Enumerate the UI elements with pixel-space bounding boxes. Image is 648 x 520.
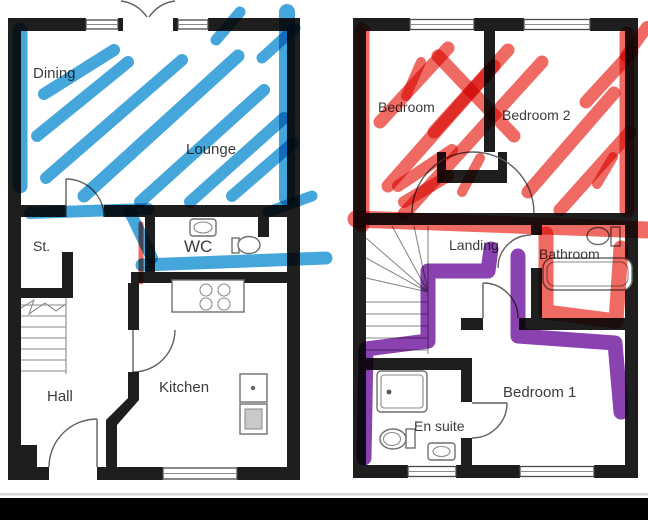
wall bbox=[484, 31, 495, 152]
kitchen-sink-icon bbox=[240, 374, 267, 434]
wall bbox=[21, 288, 73, 298]
front-door-arc bbox=[49, 419, 97, 467]
toilet-icon bbox=[380, 429, 415, 449]
floor-plan-canvas: Dining Lounge St. WC Hall Kitchen bbox=[0, 0, 648, 520]
room-label-wc: WC bbox=[184, 237, 212, 256]
letterbox-bottom bbox=[0, 498, 648, 520]
ground-floor-plan: Dining Lounge St. WC Hall Kitchen bbox=[8, 1, 300, 480]
wall bbox=[128, 283, 139, 330]
sink-icon bbox=[190, 219, 216, 236]
room-label-st: St. bbox=[33, 238, 50, 254]
room-label-kitchen: Kitchen bbox=[159, 379, 209, 396]
shower-icon bbox=[377, 371, 427, 412]
ensuite-door-arc bbox=[472, 403, 507, 438]
wall bbox=[36, 467, 49, 480]
red-stroke bbox=[406, 62, 421, 96]
blue-stroke bbox=[142, 258, 326, 265]
room-label-bedroom1: Bedroom 1 bbox=[503, 384, 576, 401]
wall bbox=[8, 445, 37, 480]
floor-plan-image: Dining Lounge St. WC Hall Kitchen bbox=[0, 0, 648, 520]
wall bbox=[461, 318, 483, 330]
hob-icon bbox=[172, 280, 244, 312]
wall bbox=[366, 358, 472, 370]
wall bbox=[353, 465, 408, 478]
stairs bbox=[21, 298, 66, 374]
wall bbox=[118, 18, 123, 31]
window bbox=[86, 20, 237, 479]
wall bbox=[461, 358, 472, 402]
kitchen-door-arc bbox=[133, 330, 175, 372]
french-door-arcs bbox=[121, 1, 175, 17]
wall bbox=[258, 217, 269, 237]
wall bbox=[173, 18, 178, 31]
room-label-hall: Hall bbox=[47, 388, 73, 405]
wall bbox=[461, 438, 472, 478]
sink-icon bbox=[428, 443, 455, 460]
wall bbox=[474, 18, 524, 31]
blue-marker-annotation bbox=[20, 12, 326, 265]
room-label-bedroom2: Bedroom 2 bbox=[502, 107, 571, 123]
room-label-ensuite: En suite bbox=[414, 418, 465, 434]
red-stroke bbox=[356, 219, 648, 230]
wall bbox=[237, 467, 300, 480]
wall bbox=[106, 372, 139, 467]
toilet-icon bbox=[232, 237, 260, 254]
divider bbox=[0, 493, 648, 496]
wall bbox=[97, 467, 163, 480]
blue-stroke bbox=[268, 196, 312, 212]
wall bbox=[594, 465, 638, 478]
